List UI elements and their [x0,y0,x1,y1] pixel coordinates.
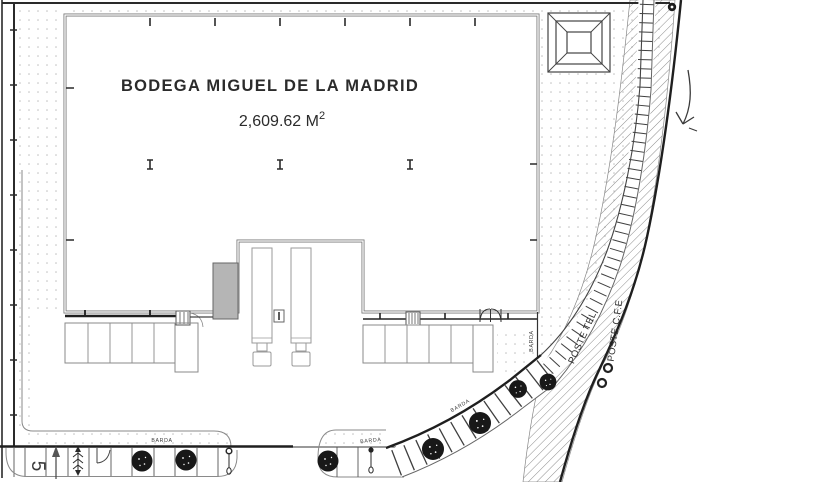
poste-icon [598,379,606,387]
roof-structure [548,13,610,72]
site-plan-svg: BODEGA MIGUEL DE LA MADRID 2,609.62 M2 [0,0,828,482]
site-plan-canvas: BODEGA MIGUEL DE LA MADRID 2,609.62 M2 [0,0,828,482]
tree-icon [318,451,339,472]
tree-icon [540,374,557,391]
direction-arrow-icon [52,446,60,479]
building-title: BODEGA MIGUEL DE LA MADRID [121,77,419,95]
utility-pole-icon [368,447,373,473]
pole-marker-icon [668,3,676,11]
truck-icon [252,248,272,366]
trucks [252,248,311,366]
door-swing-icon [97,448,110,463]
utility-pole-icon [226,448,232,474]
poste-icon [604,364,612,372]
direction-arrow-icon [676,70,697,131]
stall-number-label: 5 [27,461,48,472]
door-swing-arc [190,313,203,327]
ramp-block [213,263,238,319]
tree-icon [422,438,444,460]
tree-icon [469,412,491,434]
tree-icon [132,451,153,472]
parking-rows-building [65,323,493,372]
tree-icon [509,380,527,398]
barda-label: BARDA [151,438,172,444]
tree-icon [176,450,197,471]
barda-label: BARDA [529,330,535,351]
truck-icon [291,248,311,366]
building-area: 2,609.62 M2 [239,110,325,130]
gate-icon [73,446,83,476]
